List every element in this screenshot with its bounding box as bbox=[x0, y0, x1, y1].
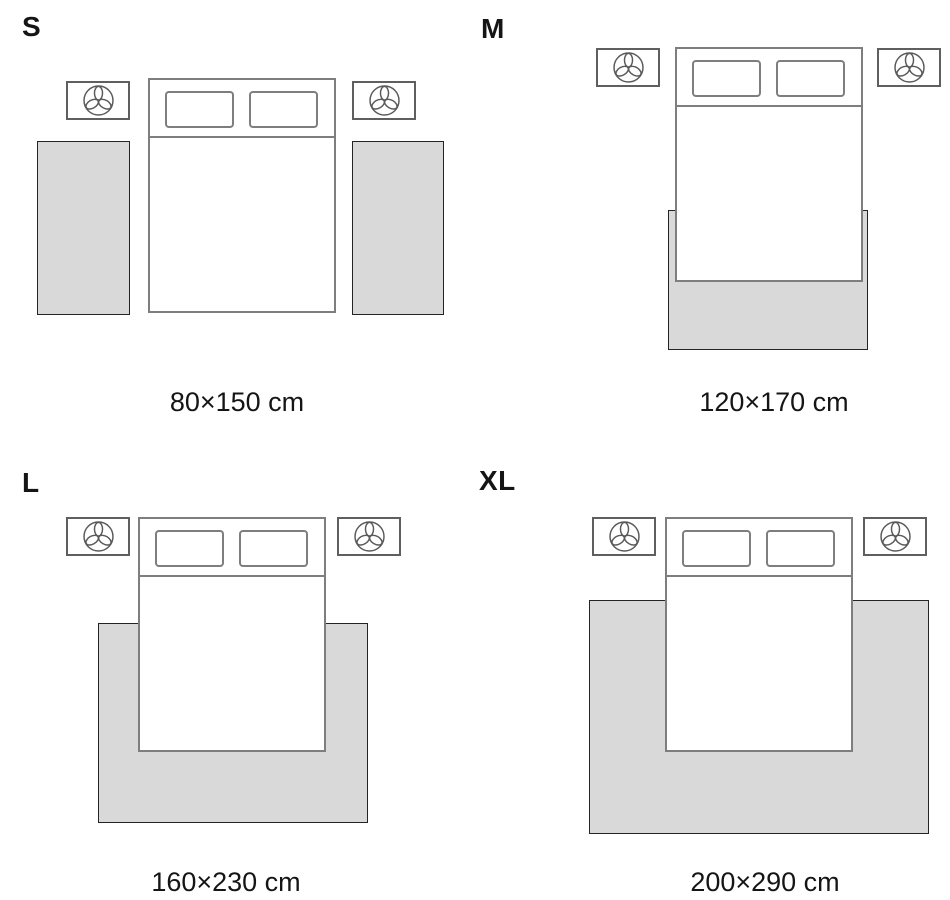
bed bbox=[675, 47, 863, 282]
rug-right bbox=[352, 141, 444, 315]
size-label-l: L bbox=[22, 469, 40, 497]
nightstand-right bbox=[337, 517, 401, 556]
nightstand-left bbox=[66, 81, 130, 120]
nightstand-right bbox=[877, 48, 941, 87]
size-option-xl: XL 200×290 cm bbox=[475, 450, 950, 900]
pillow-left bbox=[692, 60, 761, 97]
bed bbox=[138, 517, 326, 752]
pillow-left bbox=[155, 530, 224, 567]
plant-icon bbox=[879, 520, 912, 553]
bed-headboard bbox=[140, 519, 324, 577]
pillow-right bbox=[766, 530, 835, 567]
size-option-l: L 160×230 cm bbox=[0, 450, 475, 900]
plant-icon bbox=[608, 520, 641, 553]
bed-headboard bbox=[667, 519, 851, 577]
size-caption-m: 120×170 cm bbox=[699, 386, 848, 418]
nightstand-right bbox=[352, 81, 416, 120]
pillow-left bbox=[682, 530, 751, 567]
nightstand-left bbox=[596, 48, 660, 87]
bed-headboard bbox=[677, 49, 861, 107]
plant-icon bbox=[893, 51, 926, 84]
bed bbox=[665, 517, 853, 752]
plant-icon bbox=[353, 520, 386, 553]
size-label-m: M bbox=[481, 15, 505, 43]
nightstand-right bbox=[863, 517, 927, 556]
plant-icon bbox=[612, 51, 645, 84]
bed-headboard bbox=[150, 80, 334, 138]
size-option-s: S 80×150 cm bbox=[0, 0, 475, 450]
pillow-right bbox=[239, 530, 308, 567]
rug-left bbox=[37, 141, 130, 315]
pillow-right bbox=[776, 60, 845, 97]
pillow-right bbox=[249, 91, 318, 128]
nightstand-left bbox=[592, 517, 656, 556]
size-option-m: M 120×170 cm bbox=[475, 0, 950, 450]
pillow-left bbox=[165, 91, 234, 128]
rug-size-guide: S 80×150 cm bbox=[0, 0, 950, 900]
plant-icon bbox=[368, 84, 401, 117]
plant-icon bbox=[82, 520, 115, 553]
plant-icon bbox=[82, 84, 115, 117]
nightstand-left bbox=[66, 517, 130, 556]
size-label-s: S bbox=[22, 13, 41, 41]
size-label-xl: XL bbox=[479, 467, 516, 495]
size-caption-l: 160×230 cm bbox=[151, 866, 300, 898]
bed bbox=[148, 78, 336, 313]
size-caption-s: 80×150 cm bbox=[170, 386, 304, 418]
size-caption-xl: 200×290 cm bbox=[690, 866, 839, 898]
